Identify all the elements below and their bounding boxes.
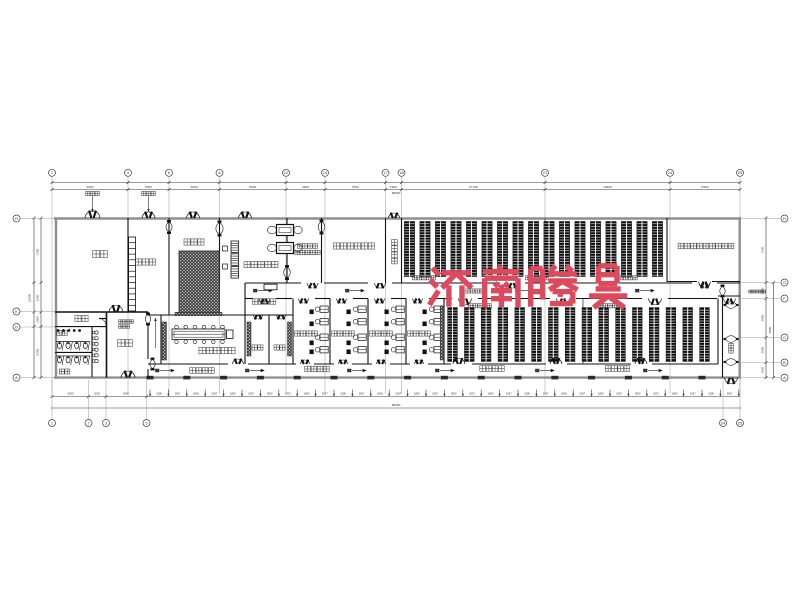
svg-text:1800: 1800: [377, 392, 383, 396]
svg-text:2067: 2067: [359, 392, 365, 396]
svg-text:6000: 6000: [191, 185, 198, 189]
svg-text:25: 25: [738, 170, 743, 175]
svg-text:1900: 1900: [390, 185, 397, 189]
svg-text:5100: 5100: [36, 348, 40, 355]
svg-text:1800: 1800: [340, 392, 346, 396]
svg-text:14: 14: [323, 170, 328, 175]
svg-text:1800: 1800: [230, 392, 236, 396]
svg-text:18: 18: [399, 170, 404, 175]
svg-text:1800: 1800: [488, 392, 494, 396]
svg-text:2067: 2067: [543, 392, 549, 396]
svg-text:2000: 2000: [94, 392, 100, 396]
svg-text:1800: 1800: [524, 392, 530, 396]
svg-text:12: 12: [284, 170, 289, 175]
svg-text:68050: 68050: [392, 403, 401, 407]
svg-text:14600: 14600: [603, 185, 612, 189]
svg-text:4500: 4500: [302, 185, 309, 189]
svg-text:1800: 1800: [708, 392, 714, 396]
svg-text:A: A: [783, 375, 786, 380]
svg-text:H: H: [783, 216, 786, 221]
svg-text:1800: 1800: [156, 392, 162, 396]
svg-text:9800: 9800: [87, 185, 94, 189]
svg-text:2067: 2067: [580, 392, 586, 396]
svg-text:24: 24: [668, 170, 673, 175]
svg-text:2067: 2067: [248, 392, 254, 396]
svg-text:16000: 16000: [28, 293, 32, 302]
svg-text:D: D: [15, 324, 18, 329]
svg-text:C: C: [783, 335, 786, 340]
svg-text:G: G: [783, 280, 786, 285]
svg-text:4300: 4300: [68, 392, 74, 396]
svg-text:7500: 7500: [352, 185, 359, 189]
svg-text:A: A: [15, 375, 18, 380]
svg-text:7200: 7200: [761, 246, 765, 253]
svg-text:2067: 2067: [322, 392, 328, 396]
svg-text:1800: 1800: [193, 392, 199, 396]
svg-text:2067: 2067: [212, 392, 218, 396]
svg-text:17700: 17700: [469, 185, 478, 189]
svg-text:1500: 1500: [761, 366, 765, 373]
svg-text:K: K: [15, 309, 18, 314]
svg-text:2500: 2500: [761, 346, 765, 353]
svg-text:1800: 1800: [561, 392, 567, 396]
svg-text:2067: 2067: [727, 392, 733, 396]
svg-text:7200: 7200: [36, 248, 40, 255]
svg-text:9500: 9500: [768, 326, 772, 333]
svg-text:2067: 2067: [690, 392, 696, 396]
svg-text:2067: 2067: [616, 392, 622, 396]
svg-text:21: 21: [543, 170, 548, 175]
svg-text:2067: 2067: [506, 392, 512, 396]
svg-text:H: H: [15, 216, 18, 221]
svg-text:5000: 5000: [145, 185, 152, 189]
svg-text:2067: 2067: [396, 392, 402, 396]
svg-text:3900: 3900: [761, 314, 765, 321]
svg-text:1800: 1800: [304, 392, 310, 396]
svg-text:2067: 2067: [175, 392, 181, 396]
svg-text:8300: 8300: [702, 185, 709, 189]
svg-text:1800: 1800: [635, 392, 641, 396]
svg-text:1800: 1800: [451, 392, 457, 396]
svg-text:68050: 68050: [392, 191, 401, 195]
svg-text:2067: 2067: [469, 392, 475, 396]
svg-text:1650: 1650: [36, 316, 40, 323]
svg-text:24: 24: [721, 420, 726, 425]
svg-text:B: B: [783, 360, 786, 365]
svg-text:1800: 1800: [598, 392, 604, 396]
svg-text:1800: 1800: [267, 392, 273, 396]
svg-text:2067: 2067: [285, 392, 291, 396]
svg-text:5000: 5000: [123, 392, 129, 396]
svg-text:3300: 3300: [36, 294, 40, 301]
svg-text:1800: 1800: [672, 392, 678, 396]
svg-text:17: 17: [383, 170, 388, 175]
svg-text:25: 25: [738, 420, 743, 425]
svg-text:1800: 1800: [414, 392, 420, 396]
svg-text:2067: 2067: [653, 392, 659, 396]
svg-text:1600: 1600: [761, 287, 765, 294]
svg-text:2067: 2067: [432, 392, 438, 396]
svg-text:8000: 8000: [249, 185, 256, 189]
